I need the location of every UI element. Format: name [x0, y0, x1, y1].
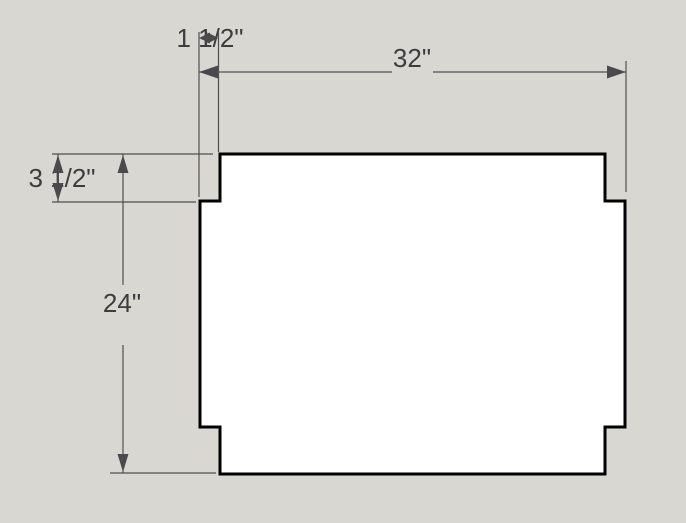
arrowhead-left-icon — [199, 66, 218, 79]
notched-panel-shape[interactable] — [200, 154, 625, 474]
drawing-canvas[interactable]: 32" 1 1/2" 3 1/2" — [0, 0, 686, 523]
dimension-notch-width[interactable]: 1 1/2" — [176, 23, 243, 152]
arrowhead-down-icon — [118, 454, 129, 472]
arrowhead-up-icon — [118, 155, 129, 173]
overall-width-label: 32" — [393, 43, 431, 73]
overall-height-label: 24" — [103, 288, 141, 318]
notch-height-label: 3 1/2" — [28, 163, 95, 193]
drawing-svg: 32" 1 1/2" 3 1/2" — [0, 0, 686, 523]
dimension-notch-height[interactable]: 3 1/2" — [28, 154, 213, 202]
arrowhead-right-icon — [607, 66, 626, 79]
